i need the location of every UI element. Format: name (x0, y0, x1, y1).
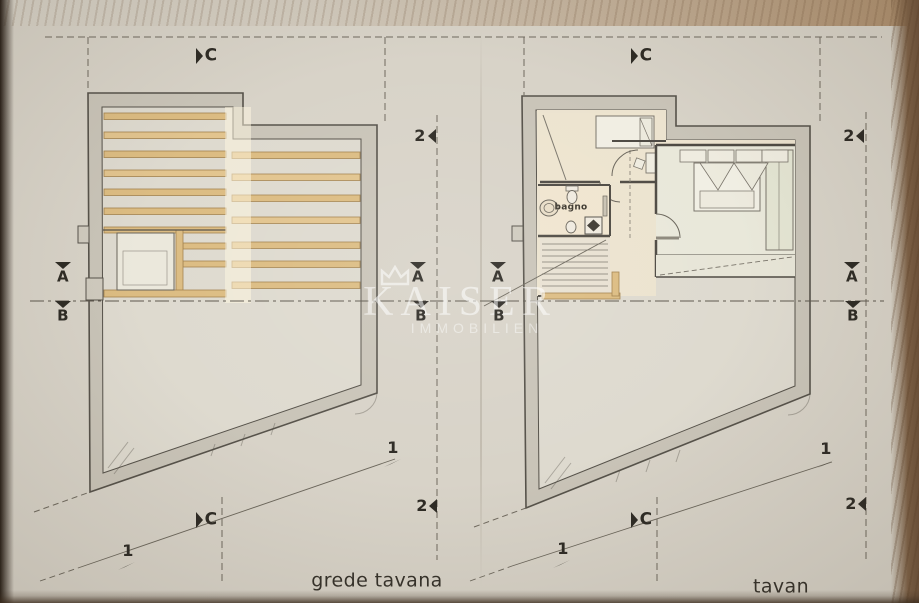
section-marker-2-upper-right: 2 (843, 128, 854, 144)
section-c-arrow-icon (631, 48, 638, 64)
section-marker-1-right-plan-lower: 1 (557, 541, 568, 557)
left-plan (78, 93, 377, 492)
wall-extension-dashed-left (34, 492, 90, 512)
left-plan-small-room (117, 233, 174, 290)
section-marker-a-left-plan-east: A (412, 270, 424, 285)
bidet (566, 221, 576, 233)
section-marker-1-left-plan-upper: 1 (387, 440, 398, 456)
main-bedroom (656, 145, 795, 277)
attic-beam (104, 132, 226, 139)
left-plan-wall-bump (78, 226, 89, 243)
section-marker-c-top-left: C (205, 48, 218, 65)
left-plan-wall-pillar (86, 278, 103, 300)
section-2-arrow-icon (858, 497, 866, 511)
section-line-1-left-ext (40, 568, 78, 581)
attic-beam (104, 113, 226, 120)
wall-extension-dashed-right (474, 508, 526, 527)
right-plan-caption: tavan (753, 578, 809, 597)
section-2-arrow-icon (429, 499, 437, 513)
section-marker-c-top-right: C (640, 48, 653, 65)
section-marker-2-upper-left: 2 (414, 128, 425, 144)
headboard-cabinets (680, 150, 788, 162)
right-plan-wall-bump (512, 226, 523, 241)
terrace-step-tick (646, 460, 650, 472)
section-marker-b-right-plan-east: B (847, 309, 859, 324)
attic-beam (232, 261, 360, 268)
attic-beam (232, 174, 360, 181)
section-1-flag-icon (118, 562, 135, 570)
room-label-bathroom: bagno (554, 204, 587, 213)
attic-beam (104, 151, 226, 158)
attic-beam (232, 152, 360, 159)
section-marker-b-right-plan-west: B (493, 309, 505, 324)
section-marker-c-bottom-left: C (205, 512, 218, 529)
section-marker-b-left-plan-west: B (57, 309, 69, 324)
bed-blanket (700, 191, 754, 208)
photo-glare-band (225, 107, 251, 303)
radiator (603, 196, 607, 216)
floor-plan-photo: KAISER IMMOBILIEN C C C C 2 2 2 2 A A A … (0, 0, 919, 603)
attic-beam (183, 243, 226, 249)
watermark-brand: KAISER (363, 281, 557, 323)
new-wall-beam-vertical (612, 272, 619, 296)
section-marker-2-lower-left: 2 (416, 498, 427, 514)
section-2-arrow-icon (856, 129, 864, 143)
wardrobe (766, 150, 793, 250)
section-marker-a-right-plan-east: A (846, 270, 858, 285)
watermark-subtitle: IMMOBILIEN (411, 321, 543, 335)
section-marker-1-right-plan-upper: 1 (820, 441, 831, 457)
section-marker-2-lower-right: 2 (845, 496, 856, 512)
section-marker-a-right-plan-west: A (492, 270, 504, 285)
attic-beam (104, 208, 226, 215)
section-marker-a-left-plan-west: A (57, 270, 69, 285)
terrace-step-tick (676, 450, 680, 462)
section-1-flag-icon (817, 460, 834, 468)
attic-beam (232, 242, 360, 249)
section-2-arrow-icon (428, 129, 436, 143)
attic-beam (183, 261, 226, 267)
section-marker-1-left-plan-lower: 1 (122, 543, 133, 559)
section-marker-c-bottom-right: C (640, 512, 653, 529)
attic-beam (232, 217, 360, 224)
section-1-flag-icon (553, 560, 570, 568)
attic-beam-vertical (176, 230, 183, 296)
section-c-arrow-icon (196, 48, 203, 64)
section-marker-b-left-plan-east: B (415, 309, 427, 324)
attic-beam (104, 290, 226, 297)
section-line-1-right-ext (470, 566, 512, 581)
attic-beam (232, 282, 360, 289)
attic-beam (104, 189, 226, 196)
attic-beam (232, 195, 360, 202)
attic-beam (104, 170, 226, 177)
left-plan-caption: grede tavana (311, 572, 442, 591)
